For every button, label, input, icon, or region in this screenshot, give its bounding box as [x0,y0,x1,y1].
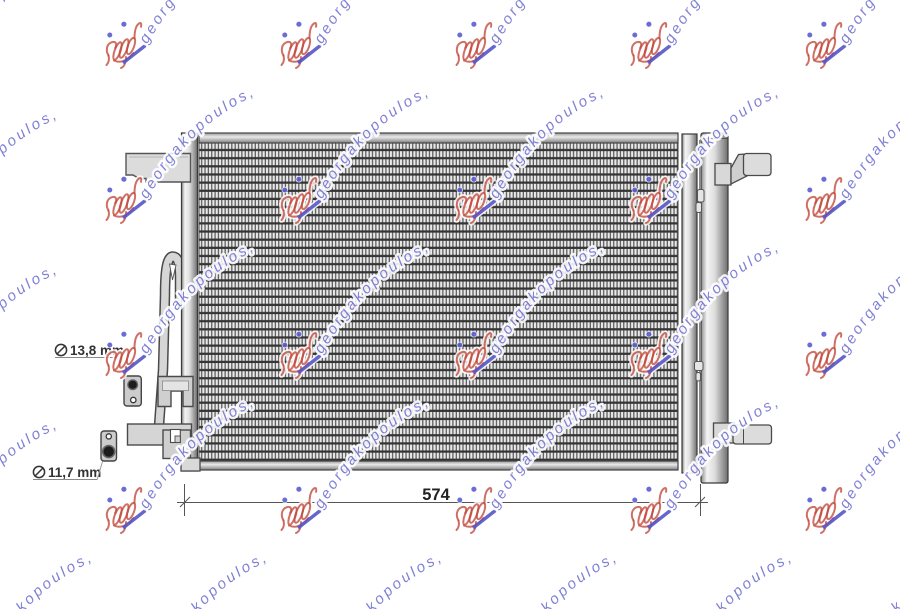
svg-text:11,7 mm: 11,7 mm [48,465,101,480]
svg-text:574: 574 [422,486,450,504]
